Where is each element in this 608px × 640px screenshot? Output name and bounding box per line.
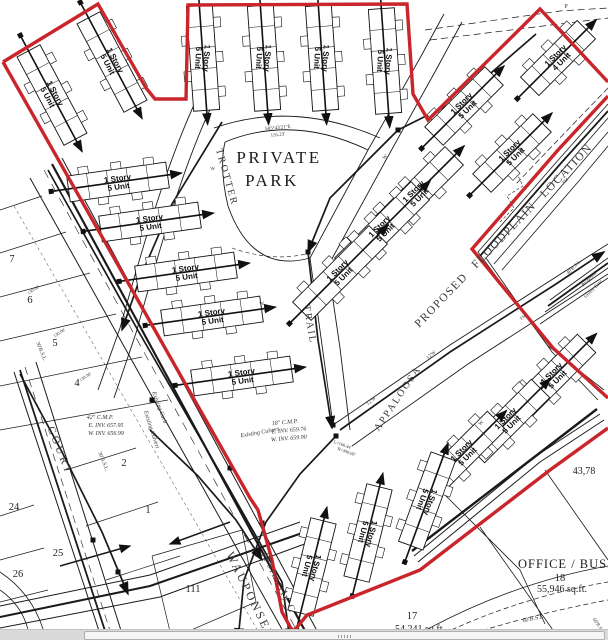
office-lot-area: 55,946 sq.ft. (537, 584, 587, 595)
scrollbar-grip-icon (338, 635, 352, 638)
building-label: 1 Story5 Unit (254, 44, 273, 73)
annotation-text: 60'B.S.L. (522, 614, 546, 625)
annotation-text: Existing Curb (150, 390, 167, 424)
annotation-text: 42" C.M.P. (87, 414, 113, 421)
street-name: APPALOOSA (372, 364, 424, 433)
annotation-text: 60'B.S.L. (591, 618, 606, 629)
scrollbar-thumb[interactable] (84, 631, 605, 640)
annotation-text: W (259, 302, 265, 308)
annotation-text: E. INV. 657.95 (87, 423, 123, 429)
site-plan-drawing: PRIVATE PARK OFFICE / BUSIN 18 55,946 sq… (0, 0, 608, 629)
annotation-text: W (210, 167, 216, 173)
annotation-text: W. INV. 656.99 (88, 431, 124, 437)
annotation-text: 12'W (426, 350, 438, 361)
building-label: 1 Story5 Unit (375, 47, 394, 76)
lot-number: 6 (27, 295, 32, 306)
lot-number: 7 (9, 254, 14, 265)
private-park-label-line2: PARK (245, 171, 299, 190)
site-plan-viewer: PRIVATE PARK OFFICE / BUSIN 18 55,946 sq… (0, 0, 608, 640)
lot-number: 2 (121, 458, 126, 469)
horizontal-scrollbar[interactable] (0, 629, 608, 640)
annotation-text: W. INV. 659.90 (271, 434, 307, 443)
street-name: COURT (45, 425, 75, 477)
lot-number: 111 (186, 584, 201, 595)
lot-number: 25 (53, 548, 64, 559)
annotation-text: 18" C.M.P. (271, 419, 298, 427)
annotation-text: Existing Culvert (142, 409, 160, 449)
annotation-text: 155.23' (270, 132, 285, 138)
lot-number: 26 (13, 569, 24, 580)
annotation-text: P (564, 4, 568, 10)
annotation-text: 130.00' (26, 284, 40, 295)
lot-number: 1 (145, 505, 150, 516)
annotation-text: W (382, 154, 389, 161)
private-park-label-line1: PRIVATE (236, 148, 321, 167)
office-lot-number: 18 (555, 573, 566, 584)
edge-area-label: 43,78 (573, 466, 596, 477)
street-name: (Formerly C (259, 551, 298, 615)
building-label: 1 Story5 Unit (193, 44, 212, 73)
annotation-text: 30'B.S.L. (96, 451, 110, 473)
lot17-number: 17 (407, 611, 418, 622)
annotation-text: 30'B.S.L. (34, 341, 48, 363)
annotation-text: S85°43'21"E (265, 125, 291, 132)
lot-number: 5 (52, 338, 57, 349)
building-label: 1 Story5 Unit (312, 44, 331, 73)
annotation-text: 130.00' (78, 371, 92, 382)
office-business-label: OFFICE / BUSIN (518, 557, 608, 571)
lot-number: 24 (9, 502, 20, 513)
